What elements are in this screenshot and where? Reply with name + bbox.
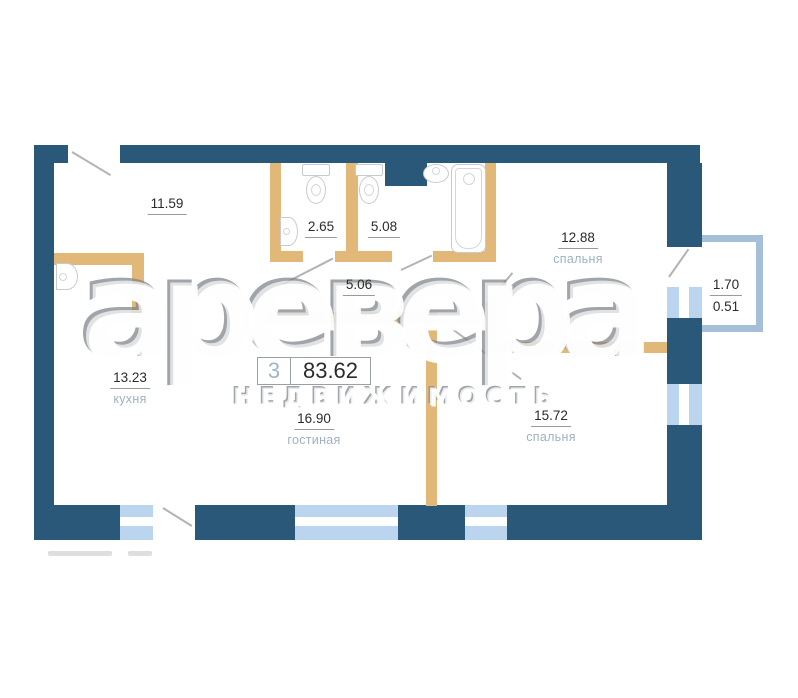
toilet-icon: [302, 164, 330, 176]
room-label-bedroom-top: 12.88 спальня: [553, 230, 603, 266]
room-area: 13.23: [110, 370, 150, 389]
window-balcony-side: [667, 287, 702, 318]
floor-plan-canvas: аревера аревера аревера НЕДВИЖИМОСТЬ НЕД…: [0, 0, 798, 698]
bottom-exit-door-swing: [162, 507, 192, 527]
window-glass-line: [120, 517, 153, 526]
toilet-icon: [355, 164, 383, 176]
window-glass-line: [679, 287, 689, 318]
bathroom-door-swing: [401, 255, 433, 271]
bathtub-drain: [463, 173, 475, 185]
room-area: 5.06: [343, 277, 375, 296]
room-label-wc: 2.65: [305, 219, 337, 238]
wall-wc-left: [270, 163, 281, 262]
wall-left: [34, 145, 54, 540]
watermark-remnant: [48, 551, 112, 556]
room-label-bathroom: 5.08: [368, 219, 400, 238]
room-area: 11.59: [148, 196, 187, 215]
wall-bath-bottom-left: [335, 251, 392, 262]
room-area: 12.88: [558, 230, 598, 249]
rooms-count: 3: [257, 357, 291, 385]
room-label-bedroom-bottom: 15.72 спальня: [526, 408, 576, 444]
apartment-summary-badge: 3 83.62: [257, 357, 371, 385]
room-label-living-room: 16.90 гостиная: [287, 411, 340, 447]
room-area: 5.08: [368, 219, 400, 238]
washbasin-drain: [432, 167, 440, 175]
wall-kitchen-right: [132, 253, 144, 318]
room-name: спальня: [526, 430, 576, 444]
wall-right-low: [667, 425, 702, 506]
window-kitchen: [120, 505, 153, 540]
window-right-wall: [667, 384, 702, 425]
watermark-subtitle: НЕДВИЖИМОСТЬ: [235, 387, 561, 411]
room-area: 16.90: [294, 411, 334, 430]
room-name: спальня: [553, 252, 603, 266]
kitchen-sink-drain: [59, 273, 67, 281]
wall-bottom-a: [34, 505, 120, 540]
room-name: гостиная: [287, 433, 340, 447]
room-label-kitchen: 13.23 кухня: [110, 370, 150, 406]
room-label-balcony: 1.70 0.51: [710, 277, 742, 314]
watermark-subtitle: НЕДВИЖИМОСТЬ: [232, 384, 558, 408]
total-area: 83.62: [290, 357, 371, 385]
toilet-bowl-inner: [311, 184, 321, 196]
room-label-corridor: 5.06: [343, 277, 375, 296]
wall-living-bedroom-divider: [426, 312, 437, 506]
wall-wc-bath-divider: [346, 163, 358, 262]
wall-top-main: [120, 145, 700, 163]
room-label-hallway: 11.59: [148, 196, 187, 215]
bedroom-top-door-swing: [487, 272, 513, 302]
room-area: 2.65: [305, 219, 337, 238]
wall-bottom-d: [507, 505, 702, 540]
balcony-area-reduced: 0.51: [713, 296, 739, 314]
wall-wc-bottom: [270, 251, 303, 262]
balcony-door-swing: [668, 249, 689, 278]
watermark-remnant: [128, 551, 152, 556]
window-living-room: [295, 505, 398, 540]
entrance-door-swing: [71, 151, 111, 176]
corner-sink-drain: [283, 228, 290, 235]
wall-right-top: [667, 163, 702, 247]
window-glass-line: [465, 517, 507, 526]
toilet-bowl-inner: [364, 184, 374, 196]
wall-bottom-c: [398, 505, 465, 540]
balcony-area: 1.70: [710, 277, 742, 296]
wall-right-mid: [667, 318, 702, 384]
wall-corridor-bottom: [267, 312, 437, 323]
wall-bath-right: [485, 163, 496, 262]
wall-bedrooms-divider: [485, 342, 667, 353]
vent-shaft: [385, 163, 427, 186]
window-bedroom-bottom: [465, 505, 507, 540]
room-name: кухня: [113, 392, 146, 406]
window-glass-line: [295, 517, 398, 526]
watermark-subtitle: НЕДВИЖИМОСТЬ: [233, 385, 559, 409]
room-area: 15.72: [531, 408, 571, 427]
wall-bottom-b: [195, 505, 295, 540]
window-glass-line: [679, 384, 689, 425]
